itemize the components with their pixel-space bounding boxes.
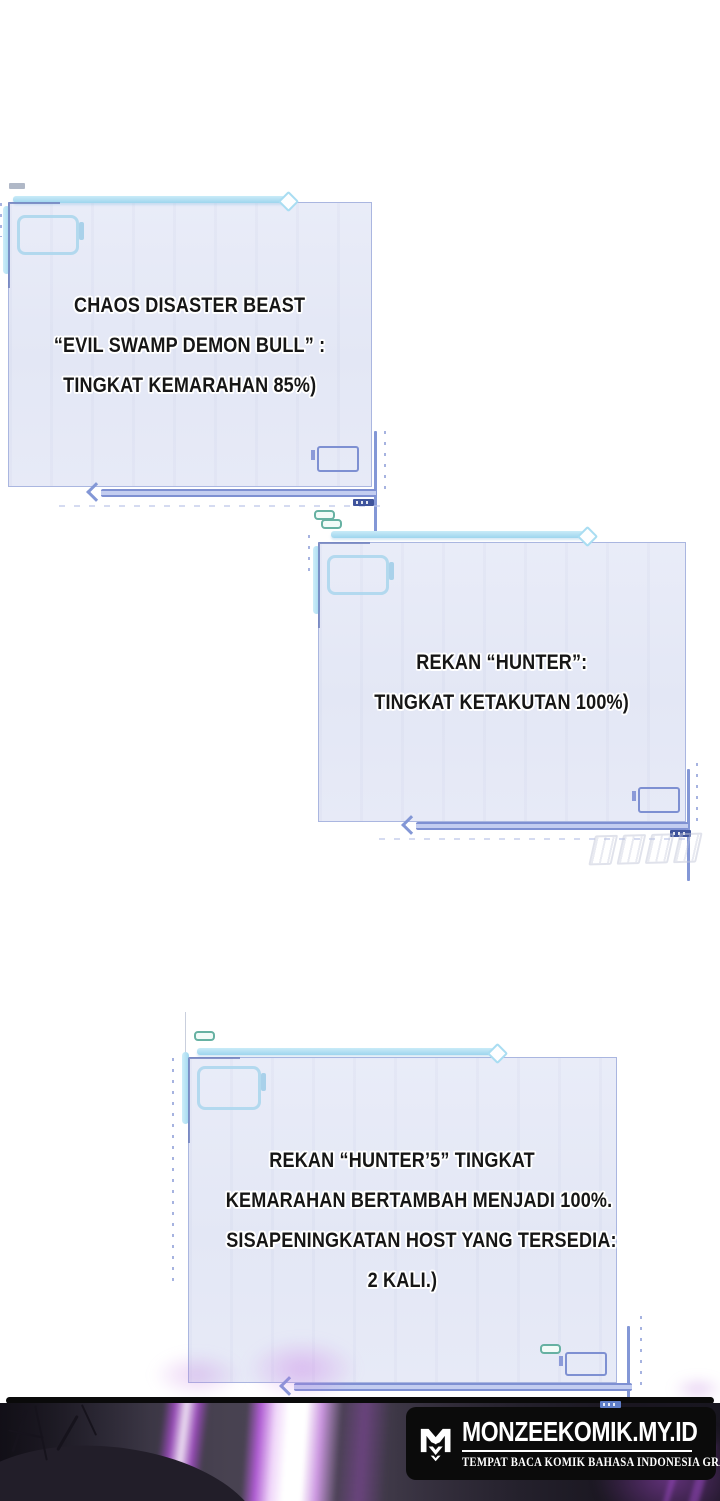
system-message-line: CHAOS DISASTER BEAST — [9, 285, 371, 325]
system-message-text: CHAOS DISASTER BEAST “EVIL SWAMP DEMON B… — [9, 203, 371, 486]
purple-light-beam — [332, 1403, 393, 1501]
hud-tick-marks — [172, 1058, 174, 1288]
system-message-line: 2 KALI.) — [189, 1260, 616, 1300]
beam-glow — [152, 1352, 242, 1398]
hud-dash-line — [59, 505, 385, 507]
watermark-glyph — [673, 833, 703, 864]
comic-page: CHAOS DISASTER BEAST “EVIL SWAMP DEMON B… — [0, 0, 720, 1501]
beam-glow — [246, 1338, 358, 1400]
site-tagline: TEMPAT BACA KOMIK BAHASA INDONESIA GRATI… — [462, 1455, 670, 1470]
hud-tick-marks — [0, 203, 2, 237]
system-message-line: KEMARAHAN BERTAMBAH MENJADI 100%. — [189, 1180, 616, 1220]
system-message-panel-3: REKAN “HUNTER’5” TINGKAT KEMARAHAN BERTA… — [188, 1057, 617, 1383]
site-watermark-badge: MONZEEKOMIK.MY.ID TEMPAT BACA KOMIK BAHA… — [406, 1407, 716, 1480]
system-message-line: REKAN “HUNTER’5” TINGKAT — [189, 1140, 616, 1180]
purple-light-beam — [240, 1403, 345, 1501]
watermark-glyph — [645, 833, 675, 864]
hud-vertical-line — [374, 431, 377, 536]
scanlation-watermark — [588, 833, 702, 866]
system-message-panel-2: REKAN “HUNTER”: TINGKAT KETAKUTAN 100%) — [318, 542, 686, 822]
system-message-line: REKAN “HUNTER”: — [319, 642, 685, 682]
hud-mini-chip — [353, 499, 374, 506]
system-message-line: SISAPENINGKATAN HOST YANG TERSEDIA: — [189, 1220, 616, 1260]
hud-mini-pill — [321, 519, 342, 529]
system-message-line: TINGKAT KEMARAHAN 85%) — [9, 365, 371, 405]
hud-top-bar — [331, 531, 584, 538]
hud-top-bar — [197, 1048, 494, 1055]
hud-mini-chip — [9, 183, 25, 189]
system-message-line: TINGKAT KETAKUTAN 100%) — [319, 682, 685, 722]
hud-tick-marks — [696, 763, 698, 829]
hud-tick-marks — [384, 431, 386, 491]
hud-mini-pill — [194, 1031, 215, 1041]
system-message-line: “EVIL SWAMP DEMON BULL” : — [9, 325, 371, 365]
hud-mini-chip — [600, 1401, 621, 1408]
hud-bottom-bar — [101, 489, 376, 497]
site-title: MONZEEKOMIK.MY.ID — [462, 1418, 660, 1446]
monzeekomik-logo-icon — [418, 1416, 453, 1472]
hud-tick-marks — [308, 535, 310, 579]
system-message-text: REKAN “HUNTER’5” TINGKAT KEMARAHAN BERTA… — [189, 1058, 616, 1382]
badge-divider — [462, 1450, 692, 1452]
system-message-panel-1: CHAOS DISASTER BEAST “EVIL SWAMP DEMON B… — [8, 202, 372, 487]
watermark-glyph — [616, 834, 646, 865]
system-message-text: REKAN “HUNTER”: TINGKAT KETAKUTAN 100%) — [319, 543, 685, 821]
hud-bottom-bar — [416, 822, 688, 830]
hud-tick-marks — [640, 1316, 642, 1386]
badge-text-block: MONZEEKOMIK.MY.ID TEMPAT BACA KOMIK BAHA… — [462, 1418, 704, 1470]
